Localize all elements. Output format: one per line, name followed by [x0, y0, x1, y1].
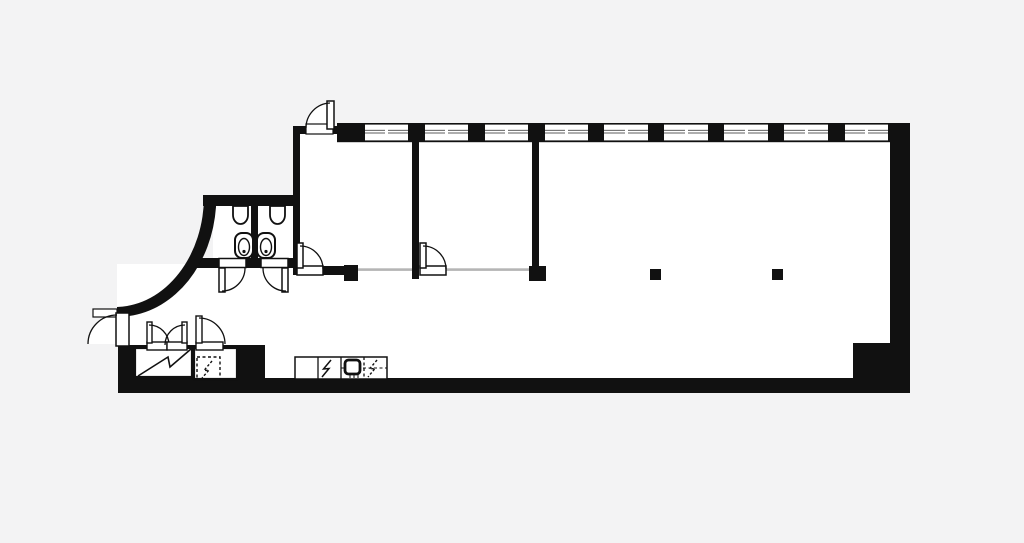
- glazed-partition-room1: [358, 268, 412, 271]
- door-room2-leaf-open: [420, 243, 426, 268]
- wall-partition-2-foot: [529, 266, 546, 281]
- kitchen: [295, 357, 387, 379]
- window-mullion-gap: [625, 129, 628, 135]
- window-pier: [337, 123, 365, 142]
- floor-areas: [117, 130, 890, 378]
- wc-sink-left: [233, 206, 248, 224]
- wall-partition-1: [412, 138, 419, 279]
- wall-wc-top: [203, 195, 300, 206]
- wall-wc-south-b: [245, 258, 262, 268]
- wall-south-block: [344, 265, 358, 281]
- door-top-leaf: [327, 101, 334, 129]
- wc-sink-right: [270, 206, 285, 224]
- floor-plan-page: [0, 0, 1024, 543]
- window-mullion-gap: [865, 129, 868, 135]
- door-wc-right-leaf-open: [282, 268, 288, 292]
- window-mullion-gap: [505, 129, 508, 135]
- window-mullion-gap: [685, 129, 688, 135]
- toilet-left-drain: [242, 250, 245, 253]
- window-pier: [768, 123, 784, 142]
- closets: [135, 348, 237, 380]
- window-pier: [588, 123, 604, 142]
- window-mullion-gap: [445, 129, 448, 135]
- floor-rooms-band: [300, 130, 890, 278]
- window-pier: [708, 123, 724, 142]
- door-wc-left-leaf-open: [219, 268, 225, 292]
- floor-right-nook: [853, 266, 890, 343]
- column: [650, 269, 661, 280]
- kitchen-sink-icon: [345, 360, 360, 374]
- door-room1-leaf-open: [297, 243, 303, 268]
- floor-plan-canvas: [0, 0, 1024, 543]
- toilet-right-drain: [264, 250, 267, 253]
- wall-partition-2: [532, 138, 539, 279]
- glazed-partition-room2: [446, 268, 529, 271]
- door-wc-left-leaf-closed: [219, 259, 246, 268]
- door-entry-leaf: [116, 313, 129, 346]
- door-closet-b-leaf-open: [196, 316, 202, 343]
- column: [772, 269, 783, 280]
- window-mullion-gap: [385, 129, 388, 135]
- window-mullion-gap: [805, 129, 808, 135]
- window-pier: [468, 123, 485, 142]
- window-mullion-gap: [565, 129, 568, 135]
- door-wc-right-leaf-closed: [261, 259, 288, 268]
- window-mullion-gap: [745, 129, 748, 135]
- window-pier: [648, 123, 664, 142]
- window-band: [337, 123, 910, 142]
- window-pier: [828, 123, 845, 142]
- closet-b-box: [194, 348, 237, 379]
- wall-room1-south: [322, 266, 345, 275]
